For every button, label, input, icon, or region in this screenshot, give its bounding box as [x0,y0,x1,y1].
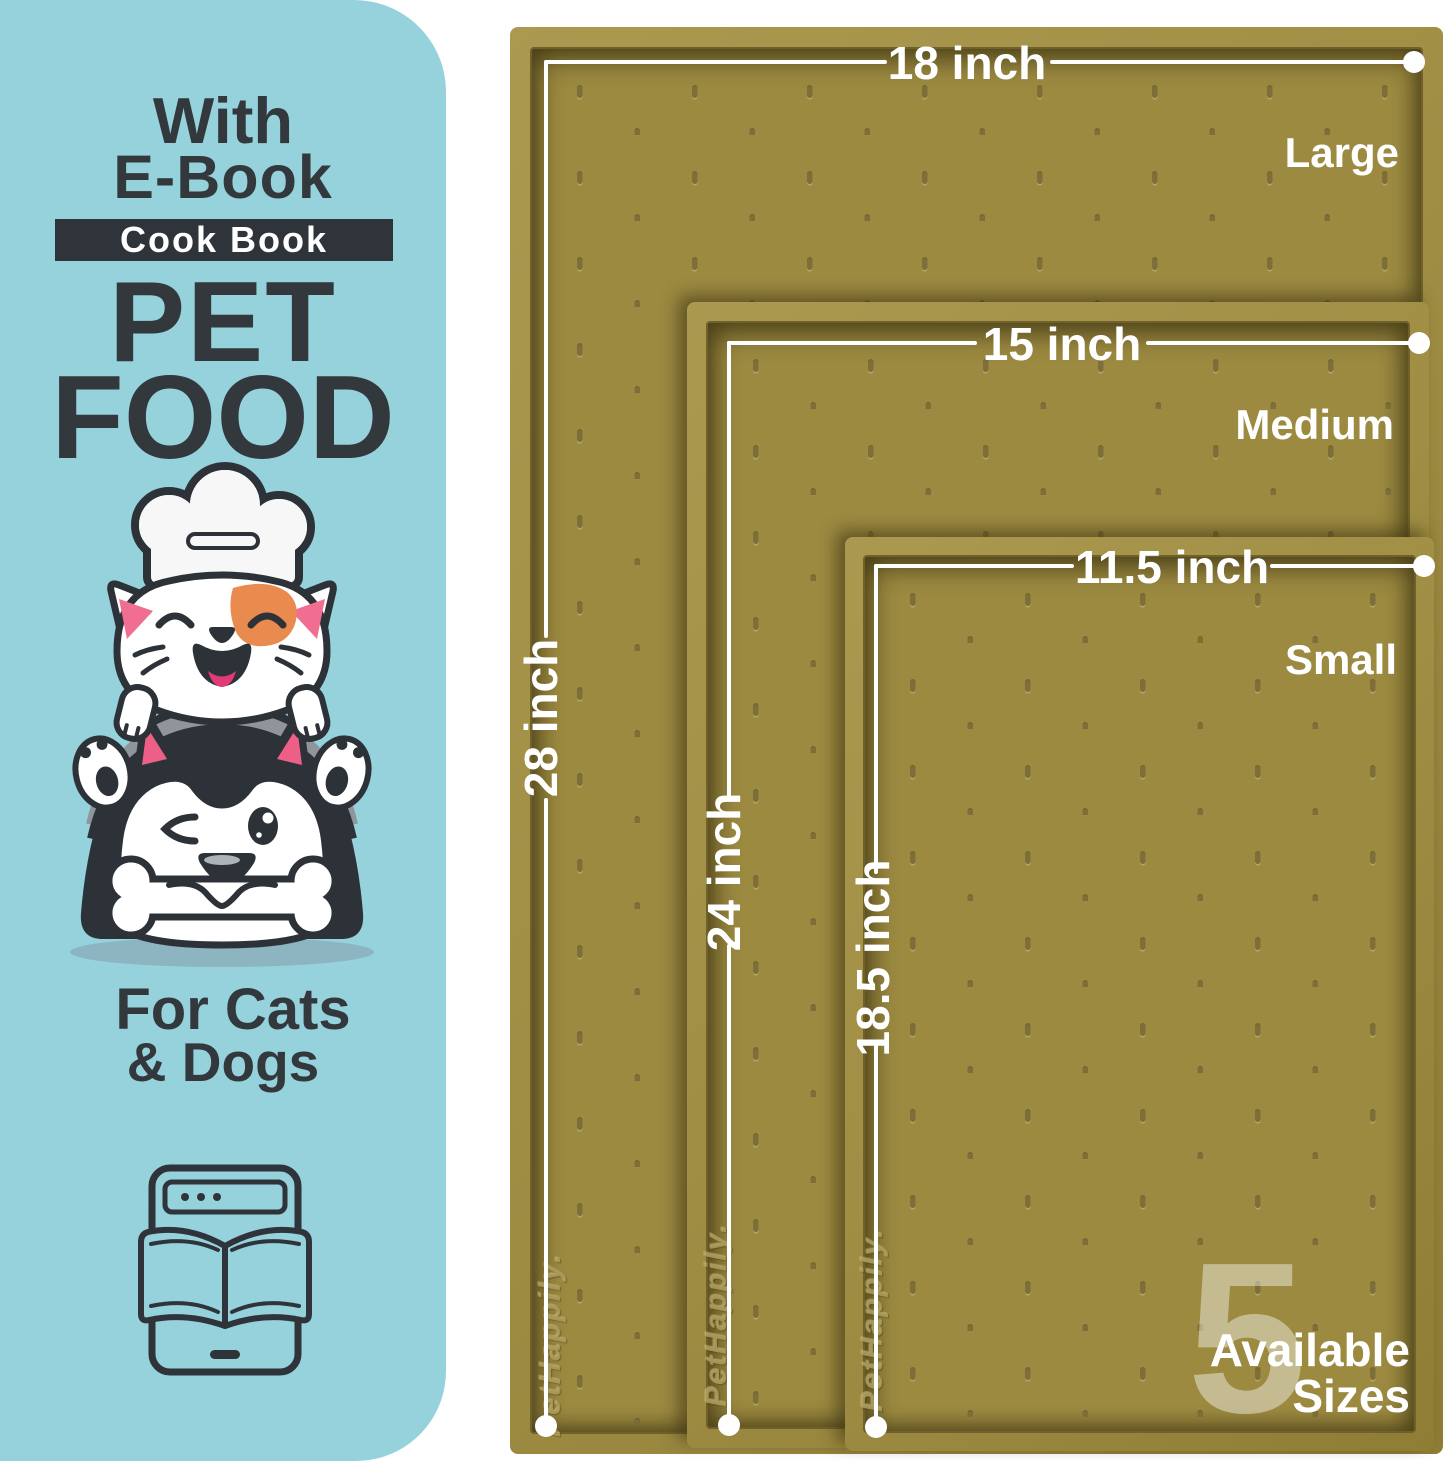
svg-text:18 inch: 18 inch [888,37,1047,89]
svg-text:24 inch: 24 inch [698,793,750,952]
svg-text:Small: Small [1285,636,1397,683]
svg-text:Available: Available [1210,1324,1410,1376]
svg-text:28 inch: 28 inch [515,639,567,798]
svg-text:15 inch: 15 inch [983,318,1142,370]
svg-text:Sizes: Sizes [1292,1370,1410,1422]
svg-text:Medium: Medium [1235,401,1394,448]
svg-text:11.5 inch: 11.5 inch [1075,541,1269,593]
svg-text:Large: Large [1285,129,1399,176]
svg-text:18.5 inch: 18.5 inch [847,860,899,1057]
